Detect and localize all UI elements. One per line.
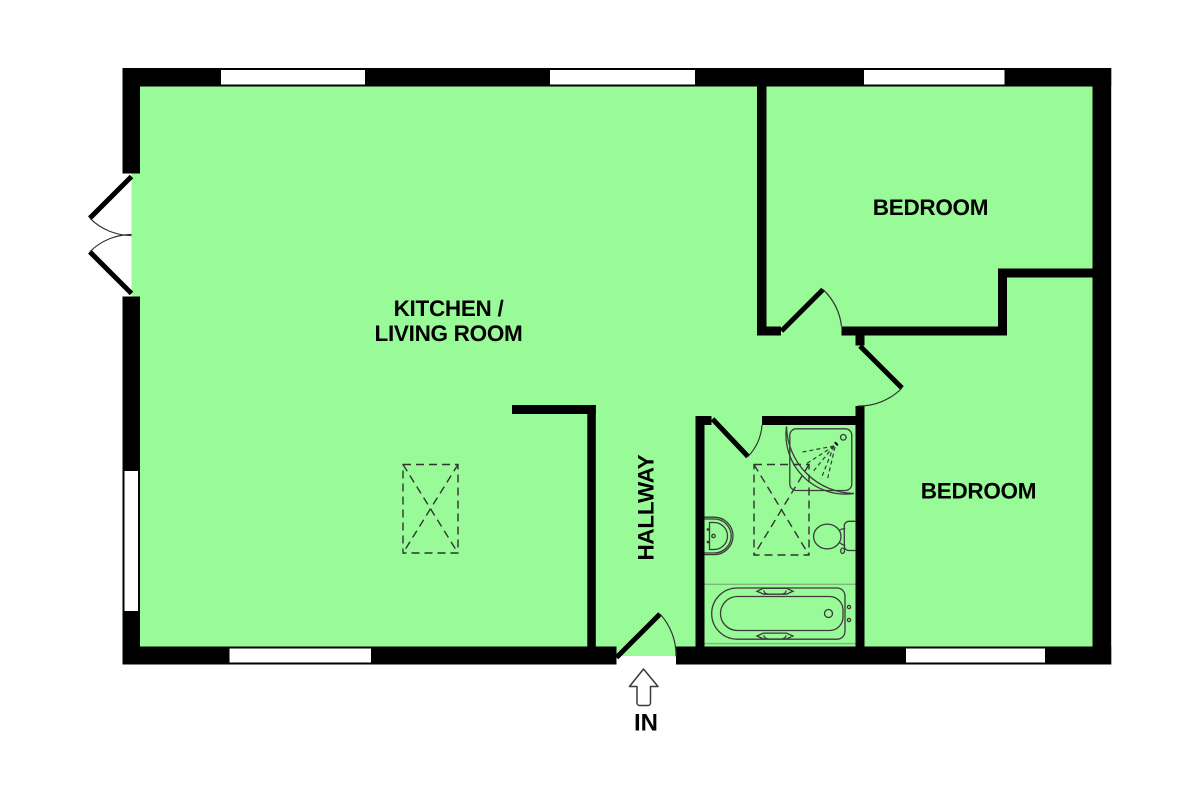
svg-text:LIVING ROOM: LIVING ROOM: [375, 321, 523, 346]
svg-text:BEDROOM: BEDROOM: [921, 479, 1036, 504]
svg-text:IN: IN: [634, 710, 658, 737]
svg-text:BEDROOM: BEDROOM: [873, 195, 988, 220]
svg-text:HALLWAY: HALLWAY: [633, 454, 658, 560]
svg-text:KITCHEN /: KITCHEN /: [394, 296, 505, 321]
